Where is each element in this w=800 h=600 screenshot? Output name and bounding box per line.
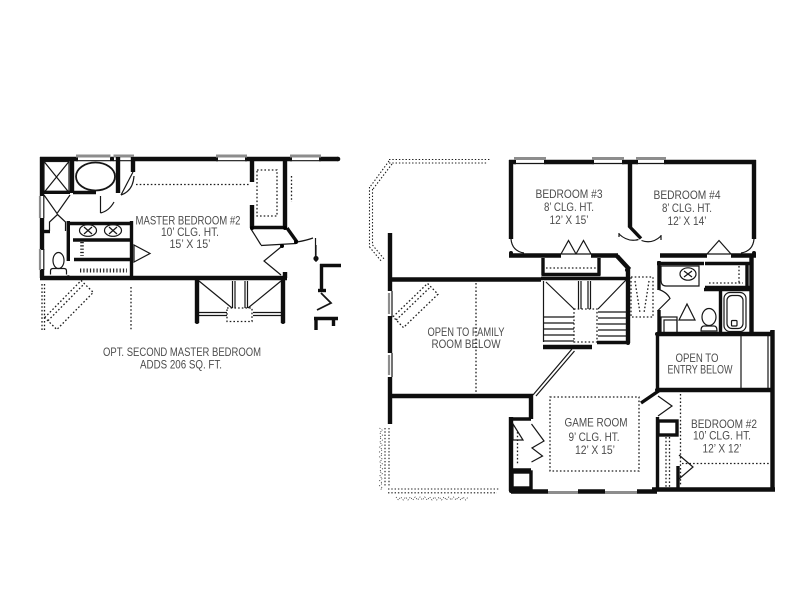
svg-text:12’ X 14’: 12’ X 14’ bbox=[668, 214, 707, 228]
svg-text:10’ CLG. HT.: 10’ CLG. HT. bbox=[693, 429, 751, 443]
svg-text:8’ CLG. HT.: 8’ CLG. HT. bbox=[662, 201, 712, 215]
svg-text:ENTRY BELOW: ENTRY BELOW bbox=[668, 363, 734, 377]
svg-text:9’ CLG. HT.: 9’ CLG. HT. bbox=[569, 430, 620, 444]
svg-text:GAME ROOM: GAME ROOM bbox=[565, 416, 628, 430]
svg-text:12’ X 15’: 12’ X 15’ bbox=[575, 443, 615, 457]
svg-text:ADDS 206 SQ. FT.: ADDS 206 SQ. FT. bbox=[140, 358, 222, 372]
svg-text:8’ CLG. HT.: 8’ CLG. HT. bbox=[544, 200, 594, 214]
svg-text:BEDROOM #3: BEDROOM #3 bbox=[536, 187, 603, 201]
svg-text:12’ X 15’: 12’ X 15’ bbox=[550, 213, 589, 227]
svg-text:15’ X 15’: 15’ X 15’ bbox=[170, 237, 211, 251]
svg-text:BEDROOM #4: BEDROOM #4 bbox=[654, 188, 721, 202]
svg-text:ROOM BELOW: ROOM BELOW bbox=[432, 337, 502, 351]
svg-text:12’ X 12’: 12’ X 12’ bbox=[703, 442, 742, 456]
